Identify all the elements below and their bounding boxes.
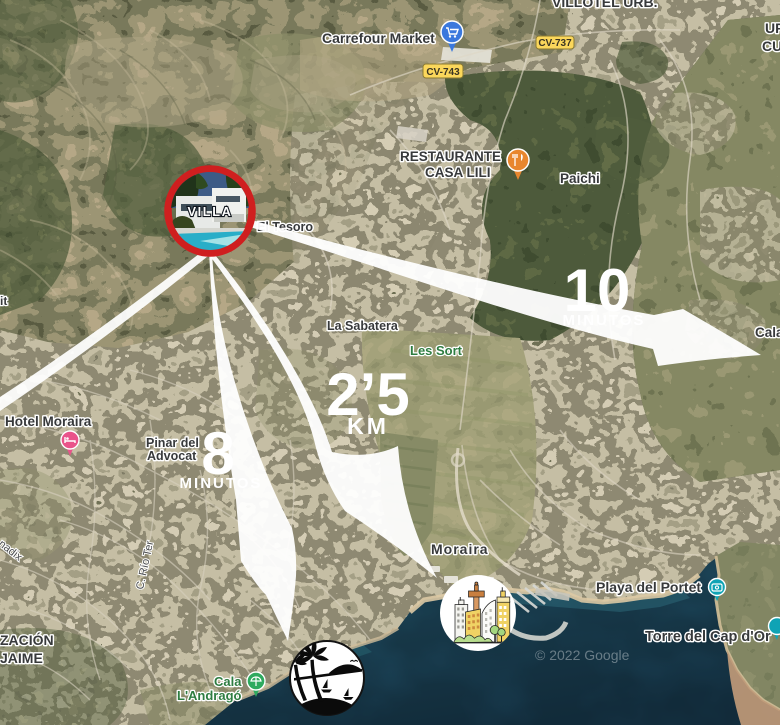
svg-text:JAIME: JAIME — [0, 650, 43, 666]
svg-text:Cala: Cala — [755, 325, 780, 340]
svg-text:MINUTOS: MINUTOS — [563, 312, 646, 329]
svg-text:CV-737: CV-737 — [538, 38, 572, 49]
svg-text:CUM: CUM — [762, 38, 780, 54]
svg-text:it: it — [0, 294, 7, 308]
svg-text:UR: UR — [765, 20, 780, 36]
svg-text:L'Andragó: L'Andragó — [177, 688, 242, 703]
svg-text:CASA LILI: CASA LILI — [425, 165, 491, 180]
svg-text:MINUTOS: MINUTOS — [180, 475, 263, 492]
svg-text:ZACIÓN: ZACIÓN — [0, 631, 54, 648]
svg-text:CV-743: CV-743 — [426, 67, 460, 78]
svg-text:Moraira: Moraira — [431, 541, 489, 557]
svg-text:Paichi: Paichi — [560, 171, 600, 186]
svg-text:VILLA: VILLA — [188, 204, 233, 219]
svg-text:VILLOTEL URB.: VILLOTEL URB. — [552, 0, 658, 10]
svg-text:© 2022 Google: © 2022 Google — [535, 647, 630, 663]
svg-text:KM: KM — [347, 413, 389, 439]
svg-text:La Sabatera: La Sabatera — [327, 319, 399, 333]
svg-text:Advocat: Advocat — [147, 449, 197, 463]
svg-text:Les Sort: Les Sort — [410, 343, 463, 358]
svg-text:Hotel Moraira: Hotel Moraira — [5, 414, 92, 429]
svg-text:Cala: Cala — [214, 674, 242, 689]
svg-text:Carrefour Market: Carrefour Market — [322, 30, 435, 46]
svg-text:Torre del Cap d'Or: Torre del Cap d'Or — [645, 629, 771, 645]
svg-text:Pinar del: Pinar del — [146, 436, 199, 450]
svg-text:RESTAURANTE: RESTAURANTE — [400, 149, 501, 164]
svg-text:Playa del Portet: Playa del Portet — [596, 579, 701, 595]
